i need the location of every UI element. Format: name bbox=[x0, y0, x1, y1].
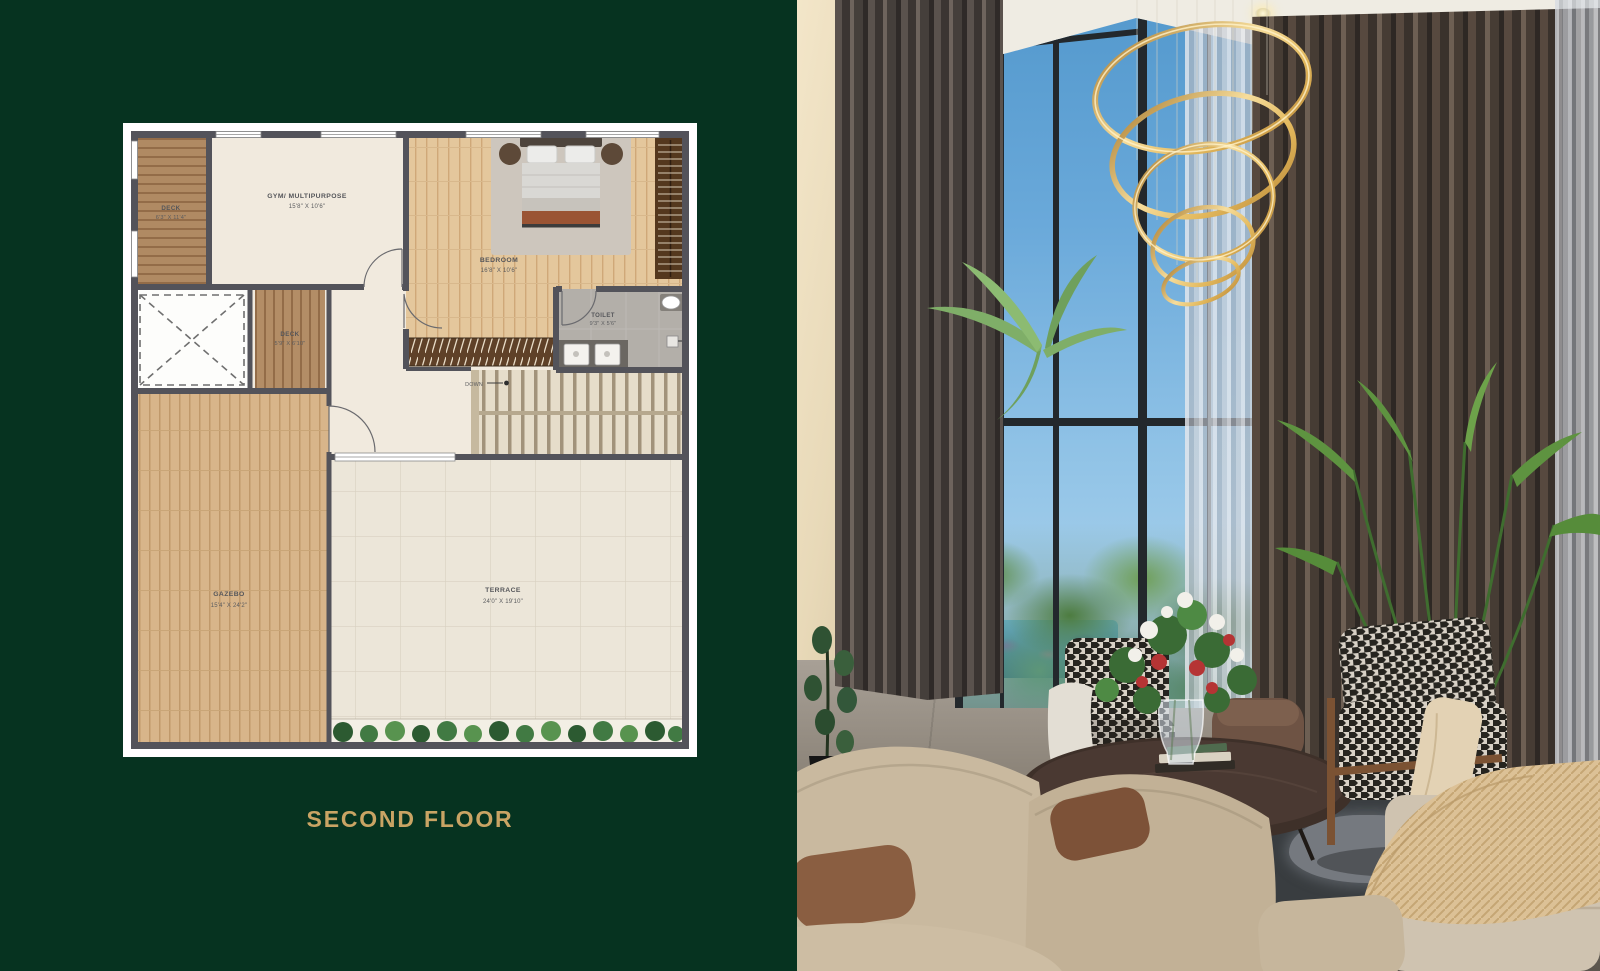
deck-top-dims: 6'3" X 11'4" bbox=[156, 215, 187, 221]
gazebo-label: GAZEBO bbox=[213, 591, 244, 598]
gym-floor bbox=[209, 134, 406, 287]
chandelier-rings bbox=[1085, 8, 1319, 313]
stair-railing bbox=[408, 338, 555, 366]
photo-overlay bbox=[797, 0, 1600, 971]
gym-dims: 15'8" X 10'6" bbox=[289, 204, 326, 210]
wardrobe bbox=[655, 138, 686, 279]
floor-title: SECOND FLOOR bbox=[123, 806, 697, 833]
palm-fronds-outside bbox=[927, 255, 1127, 420]
bed bbox=[491, 135, 631, 255]
terrace-dims: 24'0" X 19'10" bbox=[483, 599, 523, 605]
deck-mid-dims: 5'9" X 6'10" bbox=[275, 341, 306, 347]
bedroom-dims: 16'8" X 10'6" bbox=[481, 268, 518, 274]
deck-mid-floor bbox=[255, 289, 325, 391]
chandelier bbox=[1085, 0, 1319, 313]
interior-photo bbox=[797, 0, 1600, 971]
bedroom-label: BEDROOM bbox=[480, 257, 518, 264]
toilet-label: TOILET bbox=[591, 313, 615, 319]
terrace-label: TERRACE bbox=[485, 587, 521, 594]
gazebo-dims: 15'4" X 24'2" bbox=[211, 603, 248, 609]
floorplan-drawing: DECK 6'3" X 11'4" GYM/ MULTIPURPOSE 15'8… bbox=[131, 131, 689, 749]
gym-label: GYM/ MULTIPURPOSE bbox=[267, 193, 347, 200]
deck-mid-label: DECK bbox=[280, 331, 299, 338]
floorplan-card: DECK 6'3" X 11'4" GYM/ MULTIPURPOSE 15'8… bbox=[123, 123, 697, 757]
terrace-planter bbox=[329, 719, 686, 746]
stairs bbox=[471, 370, 686, 457]
terrace-slider bbox=[335, 453, 455, 461]
gazebo-floor bbox=[134, 391, 329, 746]
brochure-page: DECK 6'3" X 11'4" GYM/ MULTIPURPOSE 15'8… bbox=[0, 0, 1600, 971]
stairs-down-label: DOWN bbox=[465, 382, 483, 388]
toilet-dims: 9'3" X 5'6" bbox=[590, 321, 617, 327]
deck-top-label: DECK bbox=[161, 205, 180, 212]
